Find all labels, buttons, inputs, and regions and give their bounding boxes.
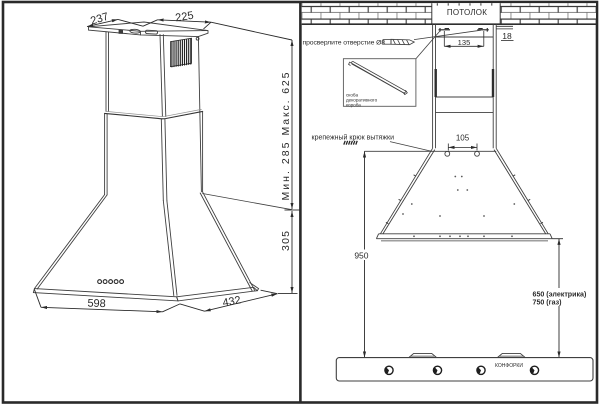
svg-text:135: 135 [458, 38, 471, 47]
svg-text:18: 18 [502, 31, 512, 41]
svg-text:ПОТОЛОК: ПОТОЛОК [447, 8, 487, 17]
svg-text:просверлите отверстие Ø8: просверлите отверстие Ø8 [303, 39, 386, 46]
svg-text:598: 598 [87, 297, 106, 310]
svg-text:650 (электрика): 650 (электрика) [533, 290, 587, 298]
svg-text:950: 950 [354, 250, 368, 260]
svg-text:Мин. 285: Мин. 285 [280, 142, 292, 200]
svg-text:крепежный крюк вытяжки: крепежный крюк вытяжки [312, 133, 395, 141]
svg-text:305: 305 [280, 231, 292, 251]
svg-text:105: 105 [456, 134, 470, 143]
svg-text:750 (газ): 750 (газ) [533, 299, 563, 307]
svg-text:короба: короба [346, 103, 361, 108]
svg-text:КОНФОРКИ: КОНФОРКИ [495, 363, 523, 369]
